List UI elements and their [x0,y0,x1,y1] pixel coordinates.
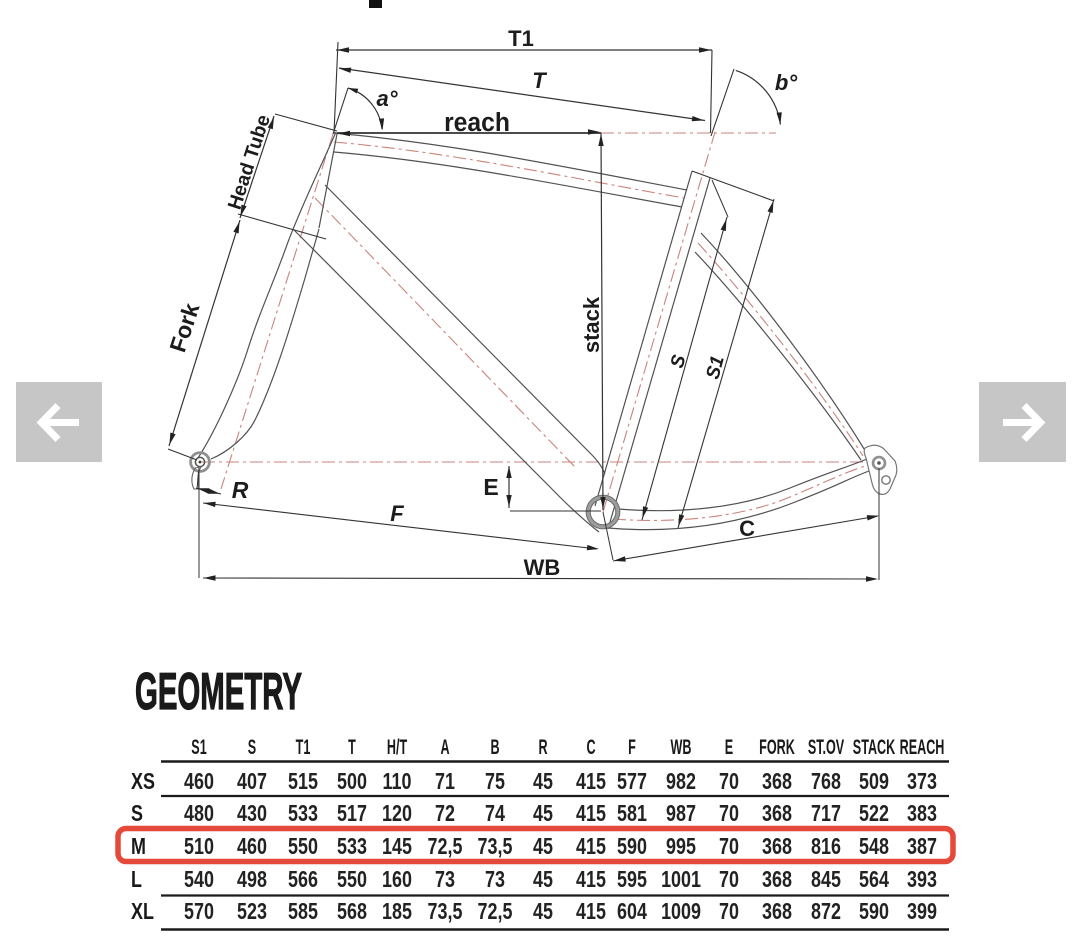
svg-text:T: T [532,68,547,93]
svg-text:M: M [131,834,146,860]
svg-text:C: C [739,516,755,541]
svg-text:393: 393 [907,867,937,893]
svg-text:75: 75 [485,769,505,795]
svg-text:R: R [232,477,249,503]
svg-text:S1: S1 [191,735,207,759]
svg-text:73: 73 [435,867,455,893]
svg-text:604: 604 [617,899,647,925]
svg-text:70: 70 [719,899,739,925]
svg-text:ST.OV: ST.OV [808,735,845,759]
svg-text:FORK: FORK [759,735,795,759]
svg-text:72,5: 72,5 [478,899,513,925]
svg-text:45: 45 [533,769,553,795]
svg-text:387: 387 [907,834,937,860]
svg-text:STACK: STACK [853,735,896,759]
svg-text:GEOMETRY: GEOMETRY [135,662,302,720]
svg-text:73,5: 73,5 [478,834,513,860]
svg-text:373: 373 [907,769,937,795]
svg-text:a°: a° [376,86,397,111]
svg-text:872: 872 [811,899,841,925]
svg-text:185: 185 [382,899,412,925]
svg-text:C: C [586,735,595,759]
svg-text:S: S [131,801,143,827]
svg-text:A: A [440,735,449,759]
svg-text:480: 480 [184,801,214,827]
svg-text:73: 73 [485,867,505,893]
svg-text:WB: WB [671,735,692,759]
svg-text:415: 415 [576,899,606,925]
svg-text:368: 368 [762,867,792,893]
svg-text:510: 510 [184,834,214,860]
svg-text:45: 45 [533,801,553,827]
svg-text:T: T [348,735,356,759]
svg-text:45: 45 [533,834,553,860]
svg-text:987: 987 [666,801,696,827]
svg-text:120: 120 [382,801,412,827]
svg-text:L: L [131,867,142,893]
svg-text:reach: reach [444,108,510,137]
svg-text:B: B [490,735,499,759]
svg-text:430: 430 [237,801,267,827]
svg-text:45: 45 [533,899,553,925]
svg-text:383: 383 [907,801,937,827]
svg-text:564: 564 [859,867,889,893]
svg-text:498: 498 [237,867,267,893]
svg-text:110: 110 [383,769,412,795]
svg-text:70: 70 [719,769,739,795]
svg-text:590: 590 [617,834,647,860]
svg-text:577: 577 [617,769,647,795]
svg-text:368: 368 [762,801,792,827]
svg-text:982: 982 [666,769,696,795]
svg-text:595: 595 [617,867,647,893]
svg-text:570: 570 [184,899,214,925]
svg-text:550: 550 [288,834,318,860]
svg-text:H/T: H/T [387,735,408,759]
svg-text:REACH: REACH [900,735,945,759]
svg-text:WB: WB [524,555,561,580]
svg-text:568: 568 [337,899,367,925]
svg-text:566: 566 [288,867,318,893]
svg-text:368: 368 [762,834,792,860]
svg-text:548: 548 [859,834,889,860]
svg-text:581: 581 [617,801,647,827]
svg-text:768: 768 [811,769,841,795]
svg-text:b°: b° [775,70,797,95]
svg-text:S: S [248,735,256,759]
svg-text:XL: XL [131,899,154,925]
svg-text:845: 845 [811,867,841,893]
svg-text:E: E [483,474,498,500]
svg-text:1009: 1009 [661,899,701,925]
svg-text:460: 460 [184,769,214,795]
svg-text:540: 540 [184,867,214,893]
svg-text:533: 533 [288,801,318,827]
svg-text:585: 585 [288,899,318,925]
svg-text:45: 45 [533,867,553,893]
svg-text:523: 523 [237,899,267,925]
svg-text:415: 415 [576,769,606,795]
svg-text:509: 509 [859,769,889,795]
svg-text:590: 590 [859,899,889,925]
svg-text:415: 415 [576,834,606,860]
svg-text:515: 515 [288,769,318,795]
svg-text:71: 71 [435,769,455,795]
svg-text:70: 70 [719,867,739,893]
svg-text:70: 70 [719,801,739,827]
svg-text:415: 415 [576,801,606,827]
svg-text:F: F [390,501,404,526]
svg-text:550: 550 [337,867,367,893]
svg-text:XS: XS [131,769,155,795]
svg-text:145: 145 [382,834,412,860]
svg-text:399: 399 [907,899,937,925]
svg-text:368: 368 [762,899,792,925]
svg-text:72,5: 72,5 [428,834,463,860]
svg-text:407: 407 [237,769,267,795]
svg-text:73,5: 73,5 [428,899,463,925]
svg-text:stack: stack [579,296,604,353]
svg-text:70: 70 [719,834,739,860]
svg-text:T1: T1 [296,735,311,759]
svg-text:500: 500 [337,769,367,795]
svg-text:160: 160 [382,867,412,893]
svg-text:522: 522 [859,801,889,827]
svg-text:460: 460 [237,834,267,860]
svg-text:R: R [538,735,547,759]
svg-text:1001: 1001 [661,867,701,893]
svg-text:74: 74 [485,801,505,827]
svg-text:995: 995 [666,834,696,860]
svg-text:533: 533 [337,834,367,860]
svg-text:E: E [725,735,733,759]
svg-text:717: 717 [811,801,841,827]
svg-text:415: 415 [576,867,606,893]
svg-text:368: 368 [762,769,792,795]
svg-text:T1: T1 [508,26,534,51]
svg-text:517: 517 [337,801,367,827]
svg-text:F: F [628,735,636,759]
svg-text:816: 816 [811,834,841,860]
svg-text:72: 72 [435,801,455,827]
